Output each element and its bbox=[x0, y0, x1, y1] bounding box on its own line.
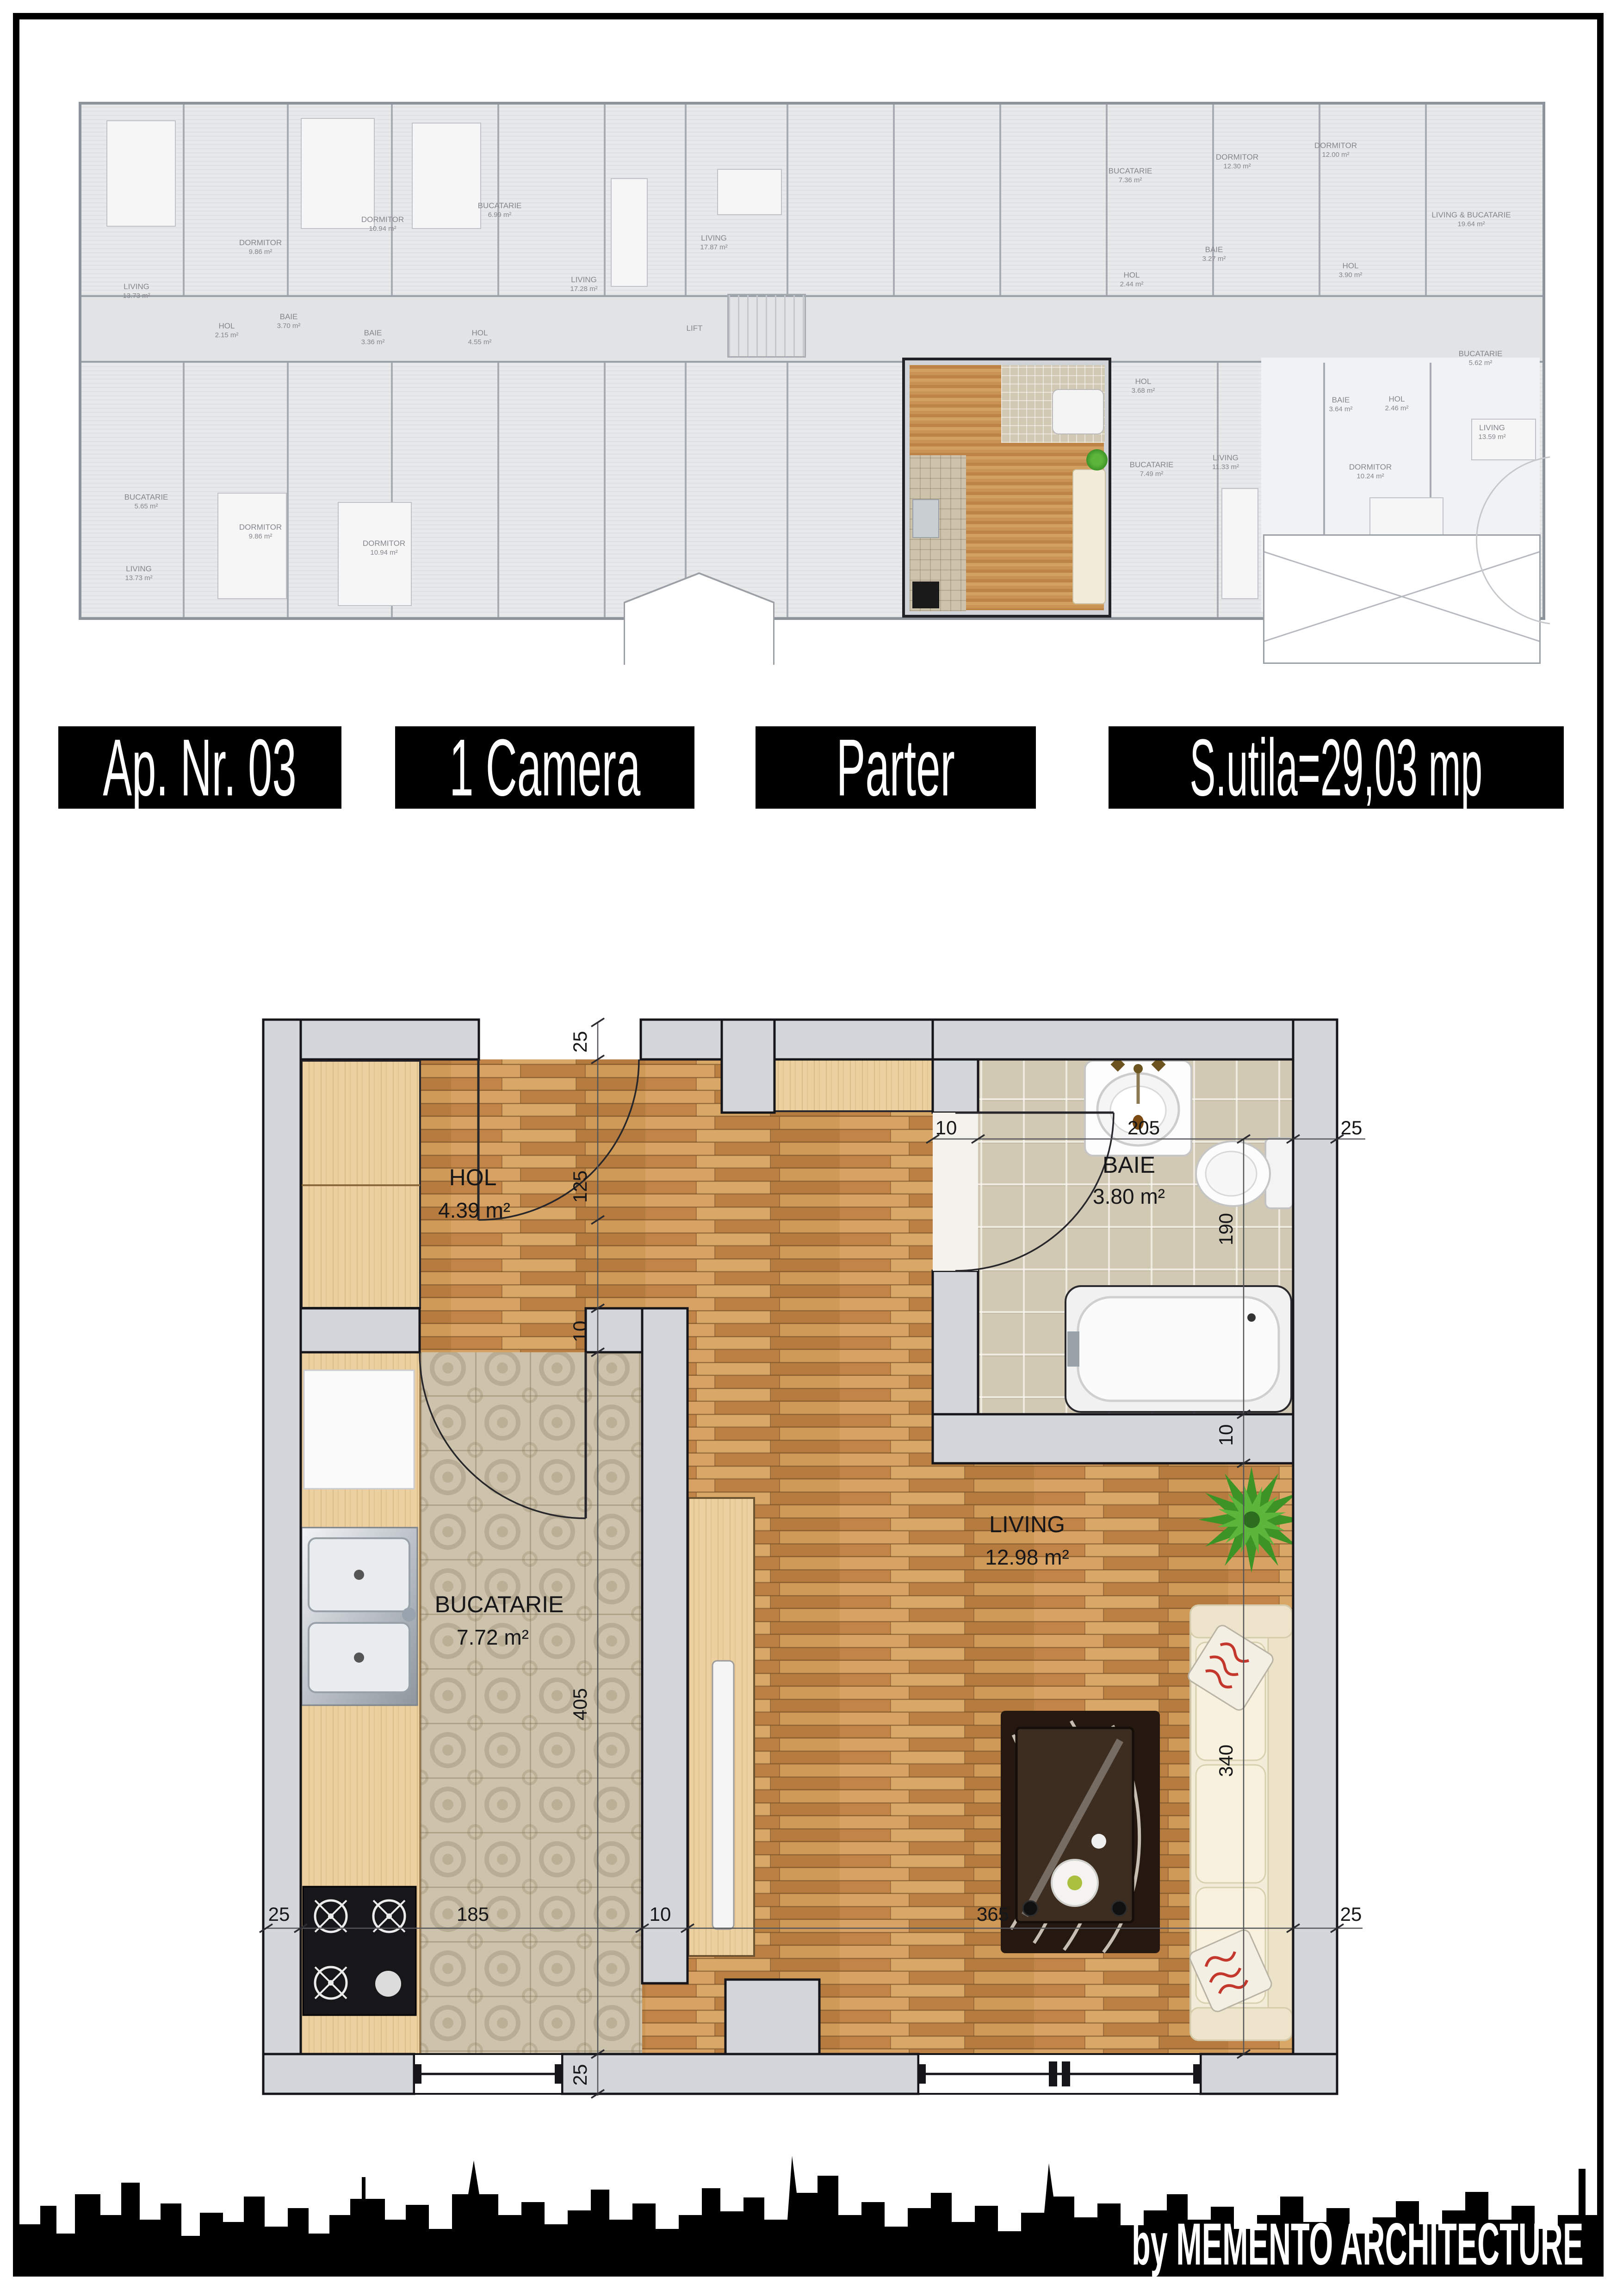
sofa bbox=[1221, 488, 1258, 599]
overview-room-label: BAIE3.64 m² bbox=[1329, 396, 1353, 414]
bathroom-sink bbox=[1085, 1057, 1191, 1156]
wall bbox=[787, 363, 788, 617]
building-overview-plan: LIVING13.73 m² DORMITOR9.86 m² DORMITOR1… bbox=[79, 99, 1550, 671]
dim: 365 bbox=[977, 1903, 1009, 1925]
banner-room-count-label: 1 Camera bbox=[449, 726, 640, 809]
sofa bbox=[611, 178, 648, 287]
wall bbox=[183, 363, 185, 617]
overview-room-label: HOL4.55 m² bbox=[468, 328, 492, 347]
dim: 340 bbox=[1215, 1745, 1237, 1777]
overview-room-label: BUCATARIE7.49 m² bbox=[1130, 460, 1174, 479]
wall bbox=[685, 105, 687, 295]
overview-lift-label: LIFT bbox=[687, 324, 703, 333]
table bbox=[717, 169, 782, 215]
dim: 10 bbox=[650, 1903, 671, 1925]
overview-room-label: HOL2.15 m² bbox=[215, 322, 239, 340]
dim: 25 bbox=[569, 1031, 591, 1053]
overview-room-label: BAIE3.36 m² bbox=[361, 328, 385, 347]
wall bbox=[893, 105, 895, 295]
tv bbox=[712, 1661, 734, 1929]
overview-room-label: LIVING17.87 m² bbox=[700, 234, 727, 252]
overview-room-label: BUCATARIE7.36 m² bbox=[1109, 167, 1152, 185]
overview-room-label: LIVING13.59 m² bbox=[1478, 423, 1505, 442]
mini-plant bbox=[1086, 449, 1108, 470]
banner-floor-label: Parter bbox=[836, 726, 955, 809]
central-corridor bbox=[81, 295, 1542, 363]
bed bbox=[301, 118, 375, 229]
dim: 405 bbox=[569, 1688, 591, 1720]
banner-usable-area: S.utila=29,03 mp bbox=[1109, 726, 1564, 809]
overview-room-label: LIVING13.73 m² bbox=[123, 282, 150, 301]
wall bbox=[604, 363, 606, 617]
overview-room-label: LIVING11.33 m² bbox=[1212, 453, 1239, 472]
room-area-hol: 4.39 m² bbox=[438, 1198, 510, 1222]
highlighted-apartment-03 bbox=[902, 358, 1111, 618]
banner-apartment-number-label: Ap. Nr. 03 bbox=[103, 726, 297, 809]
coffee-table bbox=[1001, 1711, 1160, 1953]
wall bbox=[287, 363, 289, 617]
mini-sofa bbox=[1072, 469, 1106, 604]
overview-room-label: BAIE3.27 m² bbox=[1202, 245, 1226, 264]
wall bbox=[497, 363, 499, 617]
overview-room-label: BUCATARIE6.99 m² bbox=[478, 201, 522, 220]
wardrobe bbox=[302, 1061, 420, 1308]
overview-room-label: DORMITOR10.24 m² bbox=[1349, 463, 1392, 481]
overview-room-label: BUCATARIE5.62 m² bbox=[1459, 349, 1503, 368]
kitchen-cabinet bbox=[304, 1370, 414, 1489]
bed bbox=[412, 123, 481, 229]
dim: 25 bbox=[268, 1903, 290, 1925]
dim: 25 bbox=[1340, 1903, 1362, 1925]
bed bbox=[106, 120, 176, 227]
overview-room-label: DORMITOR9.86 m² bbox=[239, 238, 282, 257]
dim: 205 bbox=[1127, 1117, 1160, 1139]
mini-sink bbox=[912, 499, 939, 538]
overview-room-label: DORMITOR10.94 m² bbox=[361, 215, 404, 234]
dim: 185 bbox=[457, 1903, 489, 1925]
bathtub bbox=[1065, 1286, 1291, 1412]
kitchen-sink bbox=[302, 1528, 417, 1705]
dim: 10 bbox=[935, 1117, 957, 1139]
dim: 25 bbox=[569, 2064, 591, 2086]
mini-stove bbox=[912, 582, 939, 608]
console-cabinet bbox=[774, 1059, 933, 1111]
dim: 10 bbox=[569, 1321, 591, 1343]
wall bbox=[1217, 363, 1219, 617]
wall bbox=[497, 105, 499, 295]
dim: 10 bbox=[1215, 1424, 1237, 1446]
overview-room-label: HOL2.44 m² bbox=[1120, 271, 1144, 289]
overview-room-label: DORMITOR9.86 m² bbox=[239, 523, 282, 541]
wall bbox=[999, 105, 1001, 295]
bed bbox=[217, 493, 287, 599]
overview-room-label: DORMITOR10.94 m² bbox=[363, 539, 405, 557]
room-area-living: 12.98 m² bbox=[985, 1545, 1069, 1569]
apartment-floor-plan: HOL 4.39 m² BAIE 3.80 m² BUCATARIE 7.72 … bbox=[257, 1013, 1367, 2105]
overview-room-label: HOL3.68 m² bbox=[1132, 377, 1155, 396]
overview-room-label: LIVING & BUCATARIE19.64 m² bbox=[1431, 210, 1511, 229]
stove bbox=[303, 1887, 416, 2015]
banner-apartment-number: Ap. Nr. 03 bbox=[58, 726, 341, 809]
overview-room-label: HOL2.46 m² bbox=[1385, 395, 1409, 413]
banner-floor: Parter bbox=[756, 726, 1036, 809]
dim: 190 bbox=[1215, 1213, 1237, 1245]
overview-room-label: DORMITOR12.30 m² bbox=[1216, 153, 1258, 171]
wall bbox=[1212, 105, 1214, 295]
toilet bbox=[1196, 1138, 1293, 1208]
overview-room-label: LIVING13.73 m² bbox=[125, 564, 152, 583]
wall bbox=[287, 105, 289, 295]
banner-room-count: 1 Camera bbox=[395, 726, 694, 809]
room-area-baie: 3.80 m² bbox=[1093, 1184, 1165, 1208]
overview-room-label: BAIE3.70 m² bbox=[277, 312, 301, 331]
room-label-hol: HOL bbox=[449, 1164, 497, 1190]
room-label-bucatarie: BUCATARIE bbox=[435, 1591, 564, 1617]
room-label-living: LIVING bbox=[989, 1511, 1065, 1537]
wall bbox=[1106, 105, 1108, 295]
wall bbox=[391, 105, 393, 295]
sofa bbox=[1186, 1605, 1292, 2040]
overview-room-label: HOL3.90 m² bbox=[1339, 261, 1363, 280]
wall bbox=[787, 105, 788, 295]
room-area-bucatarie: 7.72 m² bbox=[457, 1625, 529, 1649]
mini-bathtub bbox=[1052, 389, 1104, 434]
attribution-text: by MEMENTO ARCHITECTURE bbox=[1132, 2215, 1583, 2274]
banner-usable-area-label: S.utila=29,03 mp bbox=[1190, 726, 1483, 809]
overview-room-label: BUCATARIE5.65 m² bbox=[124, 493, 168, 511]
dim: 125 bbox=[569, 1170, 591, 1203]
wall bbox=[183, 105, 185, 295]
staircase bbox=[727, 294, 806, 358]
wall bbox=[604, 105, 606, 295]
tv-cabinet bbox=[688, 1498, 754, 1956]
overview-room-label: LIVING17.28 m² bbox=[570, 275, 597, 294]
wall bbox=[1319, 105, 1320, 295]
dim: 25 bbox=[1341, 1117, 1363, 1139]
wall bbox=[1425, 105, 1427, 295]
kettle bbox=[375, 1971, 401, 1997]
room-label-baie: BAIE bbox=[1103, 1152, 1155, 1178]
overview-room-label: DORMITOR12.00 m² bbox=[1314, 141, 1357, 160]
